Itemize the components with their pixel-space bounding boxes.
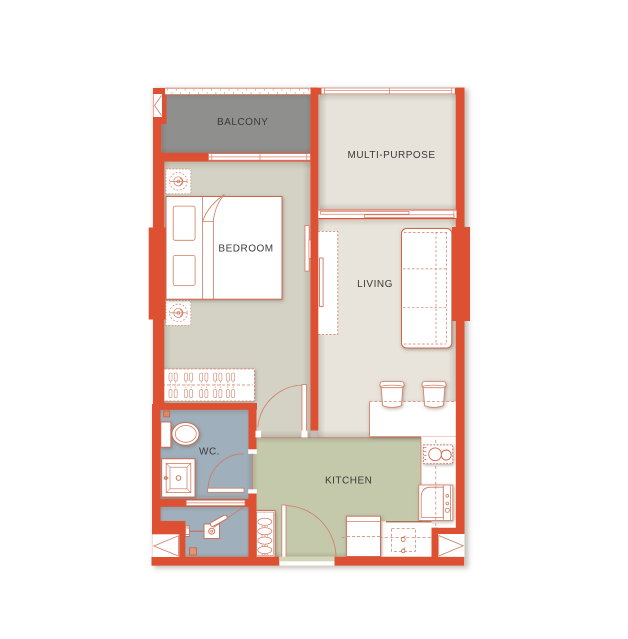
svg-text:WC.: WC. <box>199 447 220 458</box>
svg-text:BEDROOM: BEDROOM <box>218 244 273 255</box>
svg-text:KITCHEN: KITCHEN <box>325 476 372 487</box>
svg-text:LIVING: LIVING <box>357 279 393 290</box>
svg-text:BALCONY: BALCONY <box>217 117 268 128</box>
svg-text:MULTI-PURPOSE: MULTI-PURPOSE <box>348 150 436 161</box>
